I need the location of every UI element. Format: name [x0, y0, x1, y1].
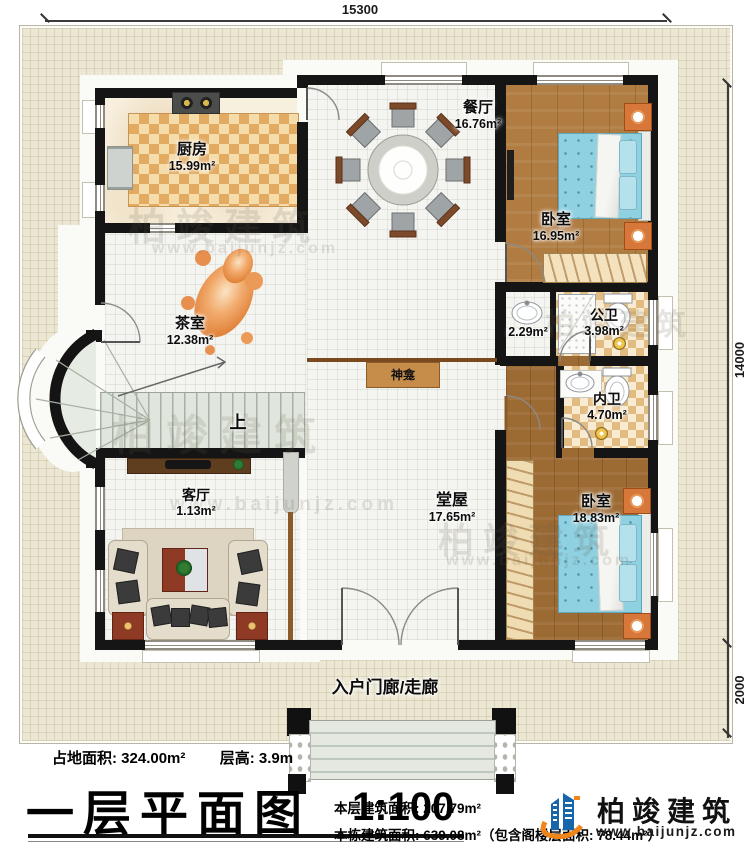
wall	[500, 356, 558, 366]
window	[95, 487, 105, 530]
wall	[86, 330, 102, 342]
dimension-right-main: 14000	[732, 330, 748, 390]
room-name: 堂屋	[429, 492, 476, 510]
window	[95, 570, 105, 612]
room-label-porch: 入户门廊/走廊	[332, 678, 439, 697]
side-table	[236, 612, 268, 640]
shrine: 神龛	[366, 362, 440, 388]
room-area: 3.98m²	[584, 324, 624, 338]
room-label-tea-room: 茶室 12.38m²	[167, 316, 214, 347]
cushion	[171, 608, 190, 627]
porch-column	[496, 774, 514, 794]
wall	[556, 448, 562, 458]
room-label-public-bath: 公卫 3.98m²	[584, 308, 624, 338]
archway-pillar	[283, 452, 299, 514]
room-label-living: 客厅 1.13m²	[176, 488, 216, 518]
wall	[95, 455, 105, 487]
room-name: 入户门廊/走廊	[332, 678, 439, 697]
room-name: 卧室	[533, 212, 580, 229]
wall	[495, 292, 506, 365]
pillow	[619, 176, 637, 210]
floor-drain	[595, 427, 608, 440]
wall	[175, 223, 297, 233]
window	[95, 105, 105, 128]
wall	[95, 223, 150, 233]
brand-logo-icon	[537, 788, 593, 842]
cushion	[237, 549, 263, 575]
room-name: 厨房	[169, 142, 216, 159]
room-name: 卧室	[573, 494, 620, 511]
nightstand	[624, 222, 652, 250]
kitchen-sink	[107, 146, 133, 190]
plant	[233, 459, 244, 470]
wardrobe-bedroom2	[506, 460, 534, 640]
wall	[550, 292, 556, 356]
tv-bedroom1	[507, 150, 514, 200]
window	[575, 640, 645, 650]
room-label-kitchen: 厨房 15.99m²	[169, 142, 216, 173]
room-label-vanity: 2.29m²	[508, 325, 548, 339]
window	[537, 75, 623, 85]
cushion	[113, 548, 139, 574]
wall	[95, 128, 105, 185]
room-label-bedroom2: 卧室 18.83m²	[573, 494, 620, 525]
stove	[172, 92, 220, 114]
window-sill	[658, 296, 673, 350]
room-name: 茶室	[167, 316, 214, 333]
nightstand	[623, 488, 651, 514]
stairs-up-label: 上	[230, 413, 247, 432]
dimension-top: 15300	[320, 2, 400, 17]
site-area: 占地面积: 324.00m²	[52, 750, 185, 767]
wall	[594, 448, 658, 458]
cushion	[116, 580, 141, 605]
window-sill	[142, 650, 260, 663]
wall	[95, 233, 105, 305]
room-area: 16.95m²	[533, 229, 580, 243]
wall	[297, 75, 385, 85]
window	[145, 640, 255, 650]
side-table	[112, 612, 144, 640]
staircase	[100, 392, 305, 449]
room-area: 1.13m²	[176, 504, 216, 518]
cushion	[150, 604, 172, 626]
room-label-bedroom1: 卧室 16.95m²	[533, 212, 580, 243]
wall	[297, 122, 308, 233]
room-label-private-bath: 内卫 4.70m²	[587, 392, 627, 422]
floor-area-text: 本层建筑面积: 207.79m²	[334, 797, 481, 817]
room-area: 15.99m²	[169, 159, 216, 173]
nightstand	[623, 613, 651, 639]
site-info: 占地面积: 324.00m² 层高: 3.9m	[52, 747, 293, 768]
floor-drain	[613, 337, 626, 350]
building-logo-icon	[537, 788, 593, 842]
window	[150, 223, 175, 233]
plant	[176, 560, 192, 576]
sofa-right	[228, 540, 268, 616]
floor-plan: 神龛	[0, 0, 750, 852]
room-area: 12.38m²	[167, 333, 214, 347]
cushion	[236, 582, 261, 607]
sofa-left	[108, 540, 148, 616]
porch-column	[287, 708, 311, 736]
nightstand	[624, 103, 652, 131]
window-sill	[658, 528, 673, 602]
room-name: 客厅	[176, 488, 216, 504]
wall	[645, 640, 658, 650]
dimension-right-porch: 2000	[732, 660, 748, 720]
dimension-line-right	[727, 84, 729, 738]
sliding-screen-track	[288, 512, 293, 640]
window	[648, 300, 658, 345]
wall	[95, 612, 105, 650]
room-area: 17.65m²	[429, 510, 476, 524]
window	[385, 75, 462, 85]
pillow	[619, 140, 637, 174]
wall	[255, 640, 342, 650]
sofa-bottom	[146, 598, 230, 640]
bed-sheet	[595, 134, 622, 219]
cushion	[207, 607, 228, 628]
room-area: 18.83m²	[573, 511, 620, 525]
window-sill	[658, 391, 673, 445]
wall	[495, 430, 506, 640]
window	[95, 185, 105, 211]
entry-steps	[309, 720, 496, 780]
tv-living	[165, 460, 211, 469]
wall	[95, 530, 105, 570]
pillow	[619, 524, 637, 562]
wall	[495, 282, 658, 292]
room-label-hall: 堂屋 17.65m²	[429, 492, 476, 524]
room-name: 公卫	[584, 308, 624, 324]
room-area: 2.29m²	[508, 325, 548, 339]
wardrobe-bedroom1	[543, 253, 647, 283]
room-label-dining: 餐厅 16.76m²	[455, 100, 502, 131]
wall	[458, 640, 575, 650]
pillow	[619, 564, 637, 602]
window	[648, 395, 658, 440]
wall	[462, 75, 537, 85]
window-sill	[572, 650, 650, 663]
room-area: 4.70m²	[587, 408, 627, 422]
shrine-label: 神龛	[391, 368, 415, 382]
wall	[88, 448, 305, 458]
wall	[590, 356, 658, 366]
floor-height: 层高: 3.9m	[220, 750, 293, 767]
room-area: 16.76m²	[455, 117, 502, 131]
brand-website: www.baijunjz.com	[596, 824, 737, 839]
dimension-line-top	[45, 20, 667, 22]
room-name: 餐厅	[455, 100, 502, 117]
wall	[648, 345, 658, 395]
room-name: 内卫	[587, 392, 627, 408]
